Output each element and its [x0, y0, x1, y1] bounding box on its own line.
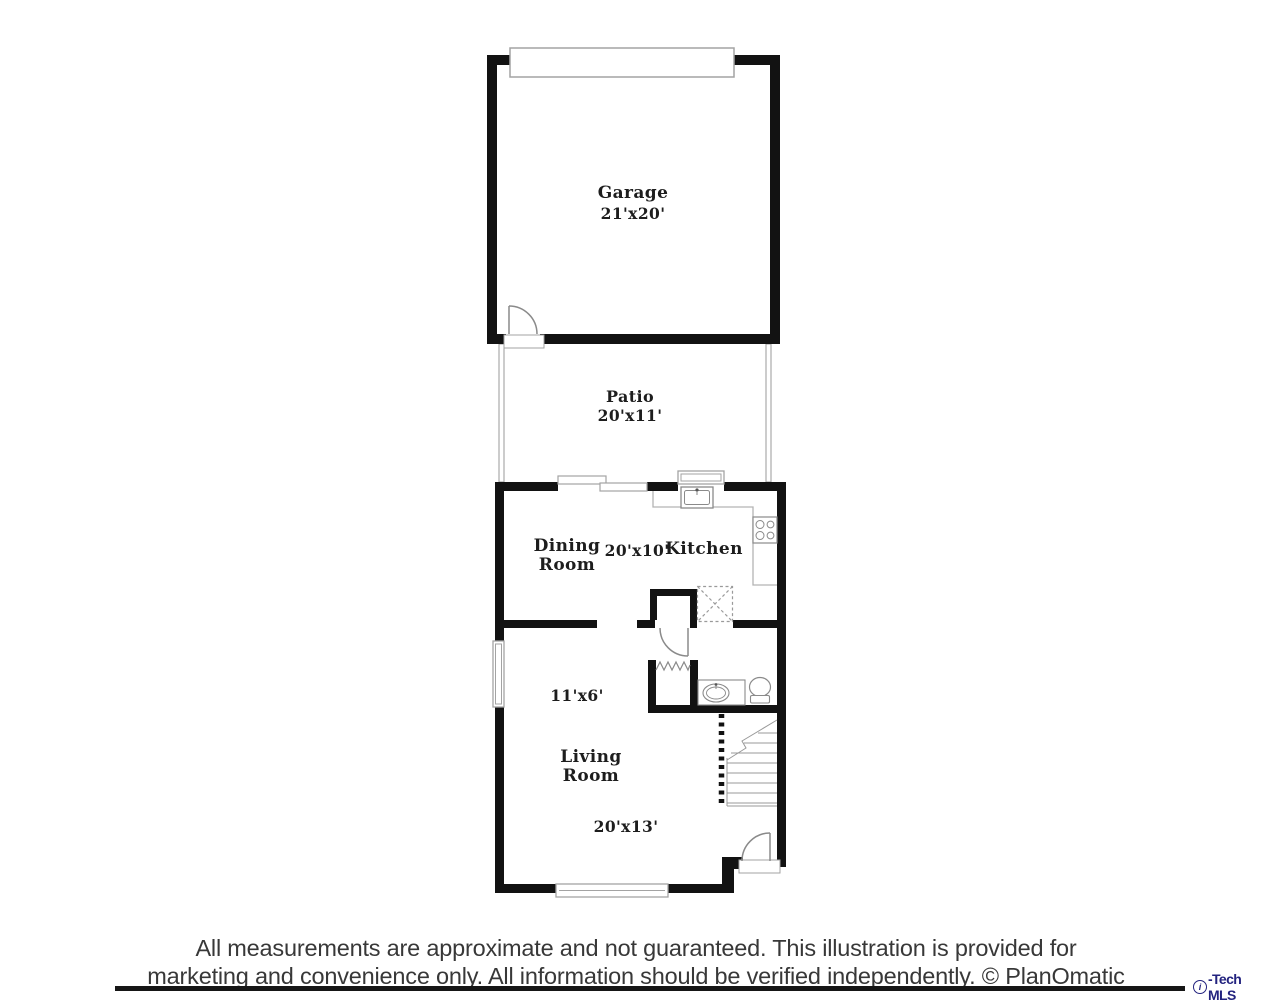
disclaimer-line-1: All measurements are approximate and not…: [0, 934, 1272, 962]
kitchen-sink-icon: [681, 487, 713, 508]
stairs-icon: [727, 720, 777, 806]
floorplan-page: Garage 21'x20' Patio 20'x11' Dining Room…: [0, 0, 1272, 1000]
patio-label: Patio: [606, 388, 654, 406]
entry-door-threshold: [739, 860, 780, 873]
stove-icon: [753, 517, 777, 543]
garage-side-door-swing-icon: [509, 306, 537, 334]
kitchen-window-icon: [678, 471, 724, 484]
entry-door-swing-icon: [742, 833, 770, 861]
footer-divider-bar: [115, 986, 1185, 991]
toilet-icon: [750, 678, 771, 704]
garage-label: Garage: [598, 184, 669, 203]
kitchen-label: Kitchen: [665, 540, 743, 559]
living-side-window-icon: [493, 641, 504, 707]
bathroom-wall: [648, 705, 786, 713]
garage-side-door-threshold: [504, 335, 544, 348]
patio-dims: 20'x11': [598, 407, 663, 424]
upper-closet-walls: [650, 589, 697, 628]
utility-closet-icon: [698, 587, 733, 622]
itech-logo-text: -Tech MLS: [1208, 971, 1272, 1003]
hall-door-swing-icon: [660, 628, 688, 656]
bathroom-vanity-icon: [698, 680, 745, 705]
sliding-door-icon: [558, 476, 647, 491]
front-window-icon: [556, 884, 668, 897]
itech-circle-i-icon: i: [1193, 980, 1207, 994]
closet-rod-icon: [656, 662, 690, 670]
interior-wall: [503, 620, 777, 628]
floorplan-drawing: [0, 0, 1272, 1000]
living-room-dims: 20'x13': [594, 818, 659, 835]
dining-room-label: Dining Room: [534, 537, 601, 575]
hall-dims: 11'x6': [550, 687, 604, 704]
garage-dims: 21'x20': [601, 205, 666, 222]
garage-door-icon: [510, 48, 734, 77]
living-room-label: Living Room: [560, 748, 621, 786]
dining-kitchen-dims: 20'x10': [605, 542, 670, 559]
itech-mls-logo: i -Tech MLS: [1193, 977, 1272, 997]
